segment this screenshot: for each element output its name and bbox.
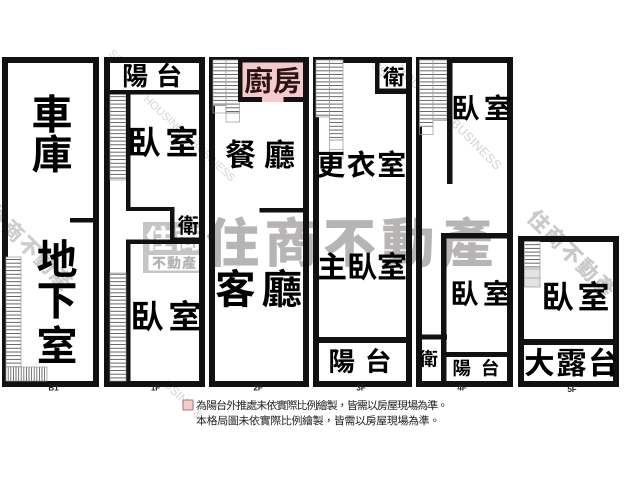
svg-text:4F: 4F bbox=[457, 384, 466, 393]
svg-text:5F: 5F bbox=[567, 385, 576, 394]
svg-text:1F: 1F bbox=[151, 384, 160, 393]
svg-text:2F: 2F bbox=[253, 384, 262, 393]
svg-text:B1: B1 bbox=[48, 384, 59, 393]
svg-text:3F: 3F bbox=[356, 384, 365, 393]
